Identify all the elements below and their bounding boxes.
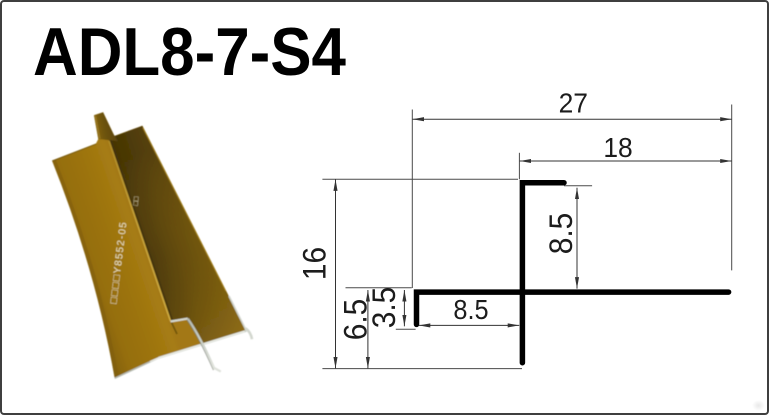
svg-text:16: 16 xyxy=(296,247,332,280)
svg-text:27: 27 xyxy=(559,88,588,119)
svg-text:8.5: 8.5 xyxy=(453,294,488,325)
svg-text:18: 18 xyxy=(603,133,632,164)
svg-text:3.5: 3.5 xyxy=(366,287,402,329)
svg-text:8.5: 8.5 xyxy=(543,213,579,255)
